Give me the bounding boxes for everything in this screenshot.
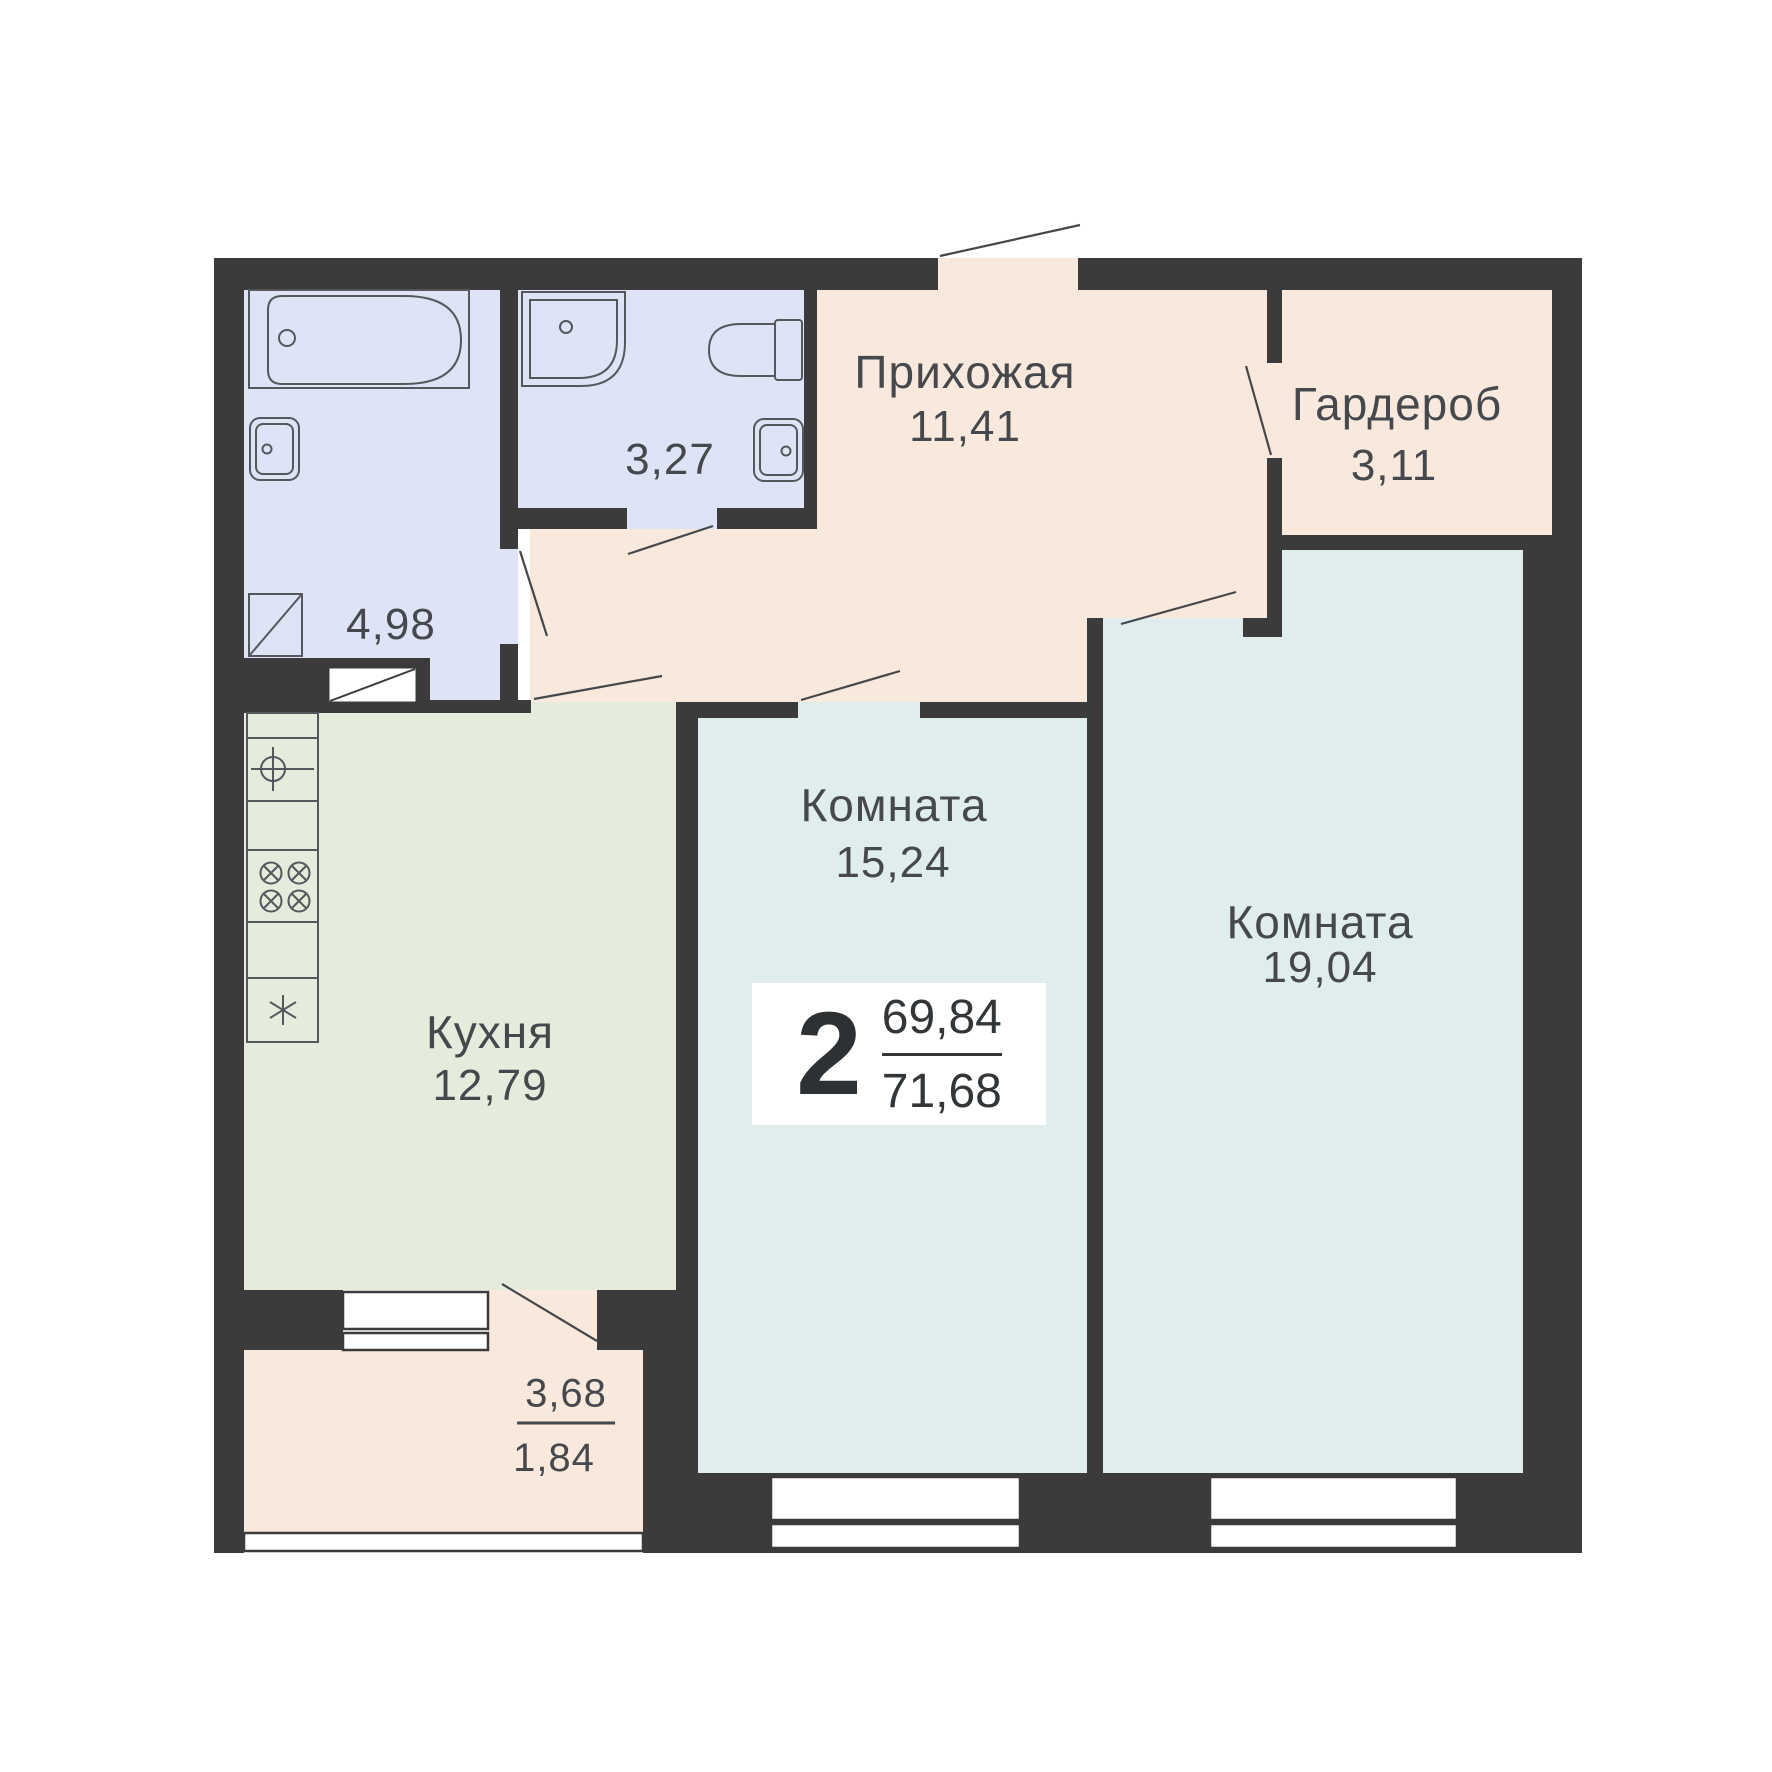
area-upper: 69,84: [882, 990, 1002, 1056]
room1-doorway: [798, 702, 920, 718]
room1-label: Комната: [800, 782, 987, 828]
wall-rooms-divider: [1087, 618, 1103, 1473]
wall-bath-divider-upper: [500, 288, 518, 549]
wall-left: [214, 258, 244, 1553]
balcony-area-reduced: 1,84: [513, 1438, 595, 1478]
wall-wardrobe-left-upper: [1267, 288, 1282, 363]
wall-top-right: [1078, 258, 1582, 290]
wall-kitchen-bottom-left: [244, 1290, 343, 1350]
wardrobe-area: 3,11: [1351, 444, 1437, 488]
wall-toilet-bottom-right: [717, 508, 817, 529]
hallway-label: Прихожая: [854, 349, 1075, 395]
wall-room2-door-stub: [1243, 618, 1280, 637]
kitchen-floor: [244, 702, 676, 1290]
wall-room1-top-right: [920, 702, 1087, 718]
wardrobe-label: Гардероб: [1292, 381, 1502, 427]
wall-bath-nook-bottom: [417, 700, 531, 713]
bathroom-floor-nook: [430, 658, 500, 702]
wall-wardrobe-bottom: [1280, 535, 1552, 550]
balcony-area-full: 3,68: [517, 1374, 615, 1425]
wall-right-main: [1523, 550, 1582, 1553]
area-lower: 71,68: [882, 1056, 1002, 1119]
wall-right-upper: [1552, 258, 1582, 550]
hallway-area: 11,41: [909, 405, 1021, 449]
room2-area: 19,04: [1262, 946, 1377, 990]
floor-plan: Прихожая 11,41 Гардероб 3,11 3,27 4,98 К…: [0, 0, 1772, 1772]
toilet-room-doorway: [627, 508, 717, 529]
entrance-doorway: [938, 258, 1078, 290]
apartment-summary-box: 2 69,84 71,68: [752, 983, 1046, 1125]
wall-toilet-bottom-left: [518, 508, 627, 529]
balcony-glazing-icon: [244, 1533, 643, 1551]
wardrobe-doorway: [1267, 363, 1282, 458]
wall-top-left: [214, 258, 938, 290]
toilet-room-area: 3,27: [625, 438, 715, 482]
balcony-doorway: [488, 1290, 597, 1350]
kitchen-label: Кухня: [426, 1009, 554, 1055]
wall-bath-divider-lower: [500, 644, 518, 705]
bathroom-doorway: [500, 549, 518, 644]
hallway-floor-mid: [530, 529, 1087, 702]
wall-room1-top-left: [676, 702, 798, 718]
kitchen-area: 12,79: [432, 1064, 547, 1108]
bathroom-area: 4,98: [346, 603, 436, 647]
hallway-floor-upper: [817, 288, 1267, 529]
room2-label: Комната: [1226, 899, 1413, 945]
room2-floor: [1103, 637, 1523, 1473]
room2-floor-upper: [1280, 550, 1523, 637]
wall-toilet-right: [804, 288, 817, 510]
wall-bath-bottom: [244, 658, 430, 713]
area-fraction: 69,84 71,68: [882, 990, 1002, 1119]
room2-doorway: [1103, 618, 1243, 637]
rooms-count: 2: [796, 995, 862, 1113]
wall-bottom: [643, 1473, 1582, 1553]
wall-kitchen-bottom-right: [597, 1290, 643, 1350]
room1-area: 15,24: [835, 841, 950, 885]
